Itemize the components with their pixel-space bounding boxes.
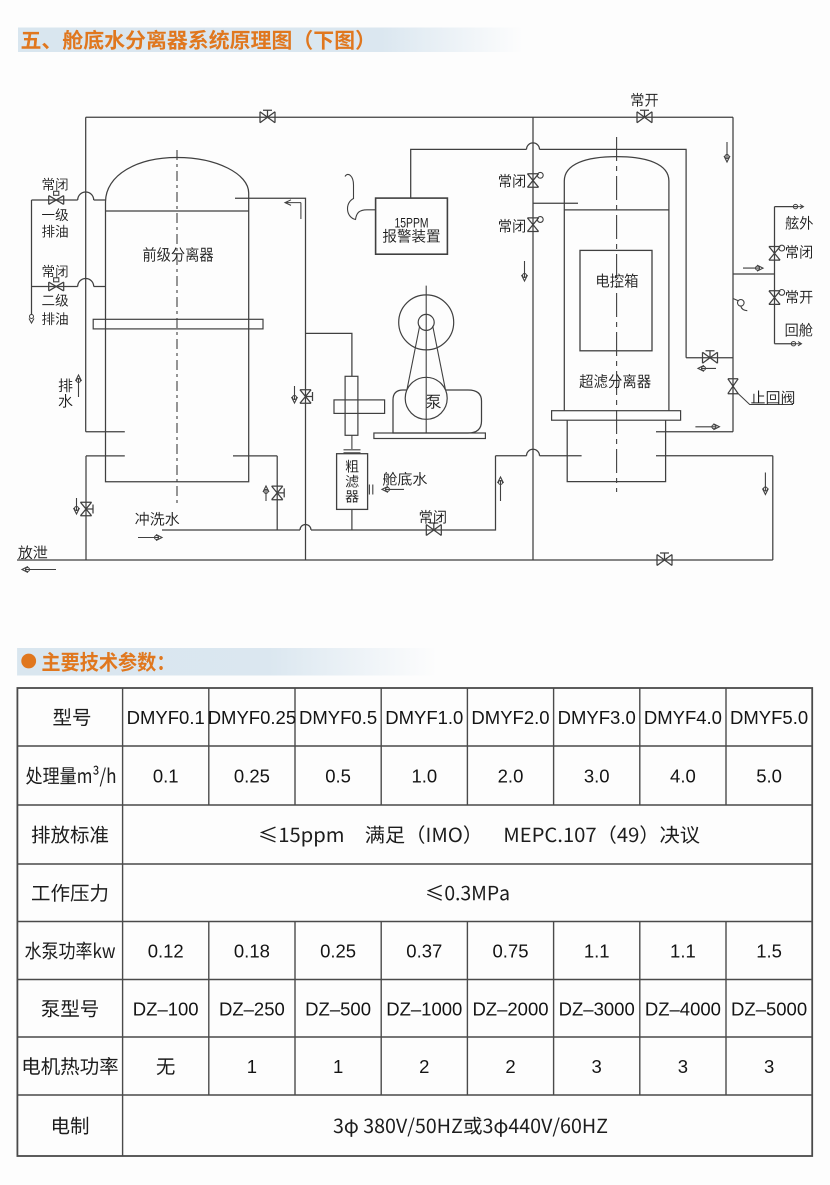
svg-text:DZ–4000: DZ–4000 [645, 999, 721, 1020]
svg-text:3: 3 [678, 1056, 688, 1077]
svg-text:DZ–500: DZ–500 [305, 999, 371, 1020]
svg-text:DMYF0.1: DMYF0.1 [127, 707, 205, 728]
svg-text:2: 2 [505, 1056, 515, 1077]
svg-text:0.25: 0.25 [320, 941, 356, 962]
svg-text:DZ–5000: DZ–5000 [731, 999, 807, 1020]
svg-text:1.5: 1.5 [756, 941, 782, 962]
svg-text:0.75: 0.75 [492, 941, 528, 962]
svg-text:3.0: 3.0 [584, 766, 610, 787]
svg-text:3: 3 [764, 1056, 774, 1077]
svg-text:DMYF4.0: DMYF4.0 [644, 707, 722, 728]
svg-text:4.0: 4.0 [670, 766, 696, 787]
svg-text:DMYF2.0: DMYF2.0 [471, 707, 549, 728]
svg-text:DZ–100: DZ–100 [133, 999, 199, 1020]
svg-text:DZ–2000: DZ–2000 [472, 999, 548, 1020]
svg-text:0.37: 0.37 [406, 941, 442, 962]
svg-text:2.0: 2.0 [498, 766, 524, 787]
svg-text:DZ–3000: DZ–3000 [559, 999, 635, 1020]
svg-text:0.12: 0.12 [148, 941, 184, 962]
svg-text:DMYF3.0: DMYF3.0 [558, 707, 636, 728]
svg-text:DMYF0.25: DMYF0.25 [208, 707, 296, 728]
svg-text:DMYF5.0: DMYF5.0 [730, 707, 808, 728]
svg-text:0.5: 0.5 [325, 766, 351, 787]
svg-text:DZ–1000: DZ–1000 [386, 999, 462, 1020]
svg-text:0.1: 0.1 [153, 766, 179, 787]
svg-text:3: 3 [592, 1056, 602, 1077]
svg-text:1: 1 [333, 1056, 343, 1077]
svg-text:5.0: 5.0 [756, 766, 782, 787]
svg-text:1.0: 1.0 [411, 766, 437, 787]
svg-text:DZ–250: DZ–250 [219, 999, 285, 1020]
svg-text:DMYF0.5: DMYF0.5 [299, 707, 377, 728]
svg-text:1.1: 1.1 [670, 941, 696, 962]
svg-text:0.25: 0.25 [234, 766, 270, 787]
svg-text:0.18: 0.18 [234, 941, 270, 962]
svg-text:2: 2 [419, 1056, 429, 1077]
svg-text:15PPM: 15PPM [395, 216, 429, 231]
svg-text:DMYF1.0: DMYF1.0 [385, 707, 463, 728]
svg-text:1: 1 [247, 1056, 257, 1077]
svg-text:1.1: 1.1 [584, 941, 610, 962]
